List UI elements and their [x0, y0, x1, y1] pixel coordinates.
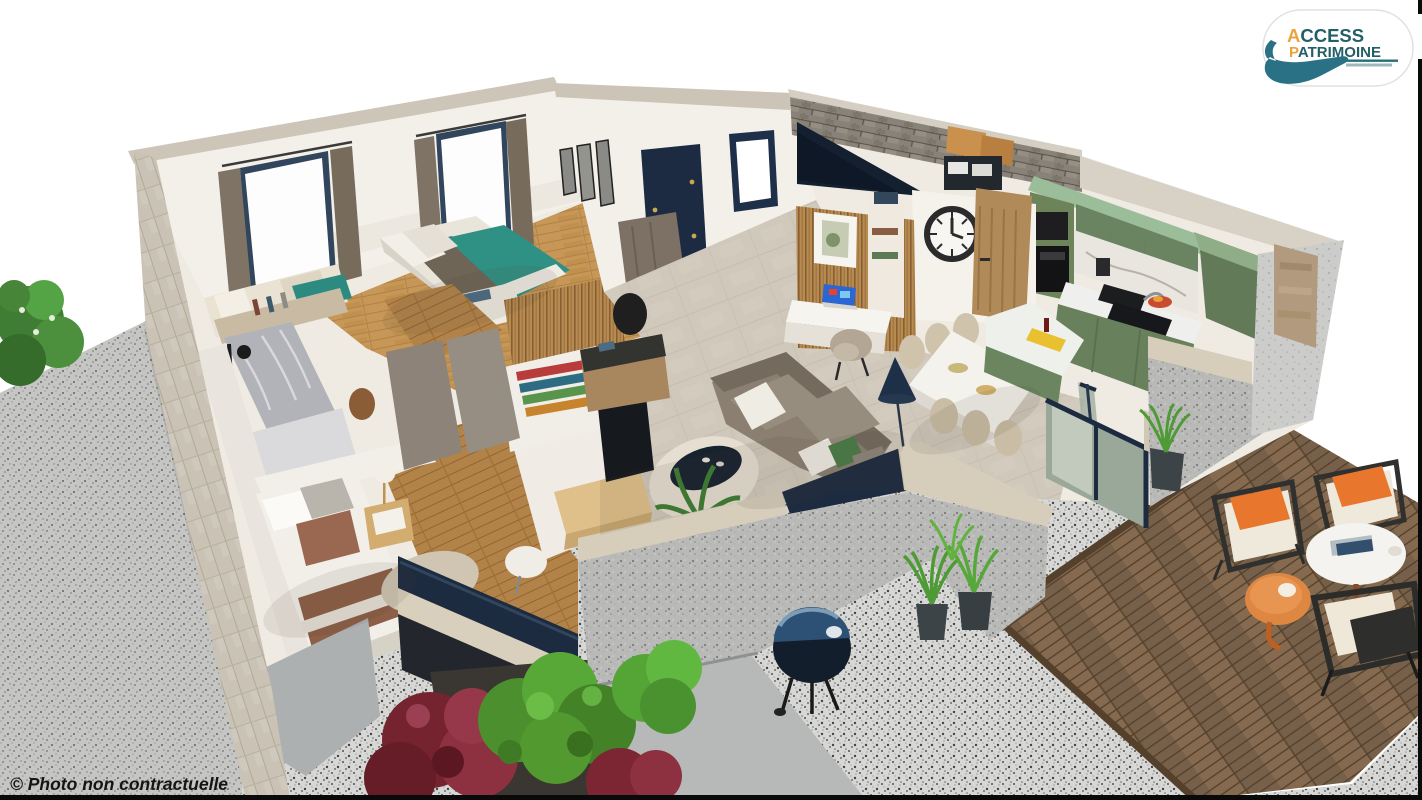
svg-text:ACCESS: ACCESS — [1287, 25, 1364, 46]
svg-text:© Photo non contractuelle: © Photo non contractuelle — [10, 774, 228, 794]
